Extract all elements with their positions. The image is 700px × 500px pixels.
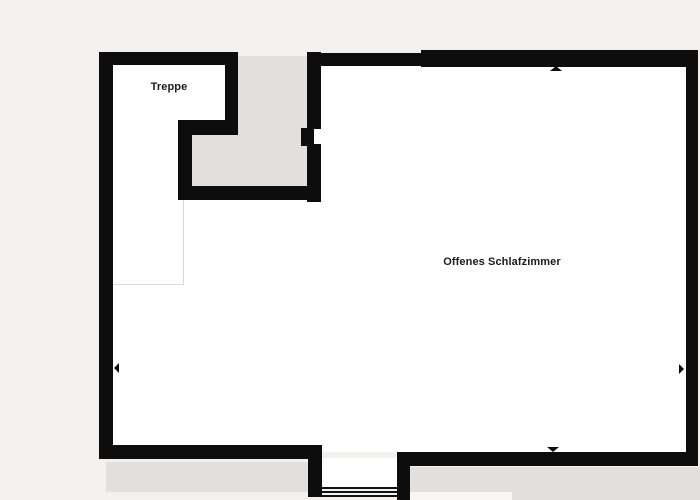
arrow-right-icon[interactable] [679,364,684,374]
stair-tread [322,487,397,489]
wall-schlafzimmer-left [307,52,321,202]
floor-plan-canvas: Treppe Offenes Schlafzimmer [0,0,700,500]
wall-stairwell-entry-right [397,452,410,500]
stair-landing-floor [322,458,397,488]
area-outline-vertical [183,200,184,285]
room-floor-lower-left[interactable] [113,200,323,445]
arrow-left-icon[interactable] [114,363,119,373]
wall-top-b [421,50,698,67]
wall-bottom-left [99,445,322,459]
wall-top-a [307,53,421,66]
stair-tread [322,491,397,493]
wall-top-treppe [99,52,238,65]
arrow-up-icon[interactable] [550,66,562,71]
wall-right-outer [686,50,698,466]
door-opening-gap [314,129,321,144]
room-label-treppe: Treppe [113,81,225,93]
door-opening-jamb [301,128,307,146]
room-label-schlafzimmer: Offenes Schlafzimmer [412,256,592,268]
area-outline-horizontal [113,284,184,285]
wall-stairwell-entry-left [308,445,322,497]
stair-tread [322,495,397,497]
adjacent-area-bottom-left [106,462,308,492]
adjacent-area-gap [410,492,512,500]
stairwell-void-lower [192,133,307,187]
wall-stairwell-bottom [178,186,320,200]
arrow-down-icon[interactable] [547,447,559,452]
wall-bottom-right [397,452,698,466]
wall-left-outer [99,52,113,458]
